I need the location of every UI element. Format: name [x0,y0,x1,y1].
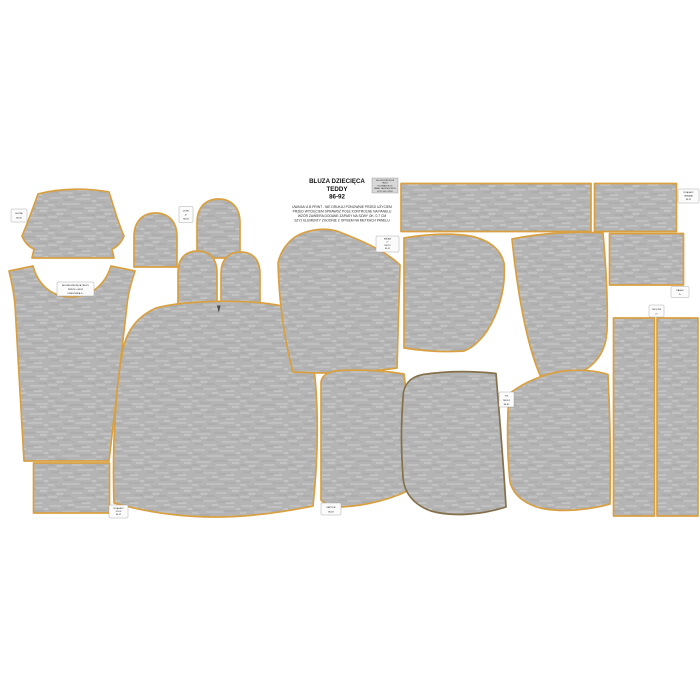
pattern-piece-skirt-2 [402,372,507,515]
tag-text-line: 86-92 [686,199,692,201]
tag-text-line: RĘKAWA [684,194,693,197]
pattern-piece-front-yoke [22,189,124,258]
piece-label-tag: BLUZA 86-92 [11,209,27,222]
pattern-piece-ear-3 [178,251,217,304]
sheet-title-line-2: TEDDY [327,186,349,193]
piece-label-tag: ŚCIĄGACZ DOŁU 86-92 [109,505,128,518]
tag-text-line: ŚCIĄGACZ [683,191,694,194]
pattern-piece-top-band-1 [401,184,591,232]
tag-background [11,209,27,222]
sheet-note-line-3: WZÓR ZAWIERA DODANE ZAPASY NA SZWY OK. 0… [298,213,386,218]
tag-text-line: KAPTUR [327,506,336,509]
piece-label-tag: KAPTUR 86-92 [321,503,341,515]
pattern-piece-ear-4 [221,252,260,304]
piece-label-tag: ŚCIĄGACZ RĘKAWA 86-92 [678,189,699,203]
piece-label-tag: BLUZA DZIECIĘCA TEDDY PRZÓD • 86-92 DRES… [57,282,94,296]
tag-text-line: 86-92 [504,404,510,406]
pattern-piece-ear-2 [197,199,240,258]
piece-label-tag: TYŁ TEDDY 86-92 [499,392,514,407]
pattern-piece-skirt-1 [321,370,413,507]
tag-text-line: 86-92 [183,219,189,221]
sheet-note-line-1: UWAGA! A B PRINT - NIE DRUKUJ PONOWNIE P… [292,204,392,209]
pattern-piece-side-panel [512,232,607,387]
pattern-piece-back-yoke [404,234,504,351]
tag-text-line: ŚCIĄGACZ [113,507,124,510]
tag-text-line: SZYJ WG OPISU [377,191,393,193]
tag-text-line: RĘKAW [384,238,391,241]
pattern-piece-top-band-2 [595,184,677,232]
sheet-title-line-3: 86-92 [329,194,345,201]
tag-text-line: TEDDY [503,400,511,402]
pattern-piece-strap-1 [614,318,655,516]
pattern-piece-ear-1 [134,213,177,267]
piece-label-tag: RĘKAW 2× TEDDY 86-92 [376,236,399,252]
sheet-note-line-2: PRZED WYCIĘCIEM SPRAWDŹ POLE KONTROLNE N… [293,209,392,214]
tag-text-line: UCHO [183,211,190,213]
tag-text-line: PRZÓD • 86-92 [68,288,84,291]
tag-text-line: 86-92 [116,514,122,516]
sheet-title-line-1: BLUZA DZIECIĘCA [309,178,365,185]
tag-text-line: DRESÓWKA 1× [68,292,84,295]
tag-text-line: TEDDY [382,183,389,185]
tag-text-line: BLUZA [15,212,23,215]
pattern-piece-skirt-3 [508,370,611,510]
tag-text-line: 86-92 [328,511,334,513]
pattern-piece-waistband [34,463,110,513]
tag-text-line: TROCZKI [652,309,662,311]
tag-text-line: 86-92 [16,218,22,220]
piece-label-tag: PASEK 2× [671,287,689,298]
pattern-sheet-canvas: BLUZA DZIECIĘCA TEDDY 86-92 UWAGA! A B P… [0,0,700,700]
tag-text-line: BLUZA DZIECIĘCA TEDDY [62,284,90,287]
tag-text-line: TEDDY [384,245,391,247]
piece-label-tag: UCHO 4× 86-92 [179,207,193,223]
tag-text-line: ROZMIAR 86-92 [378,184,394,187]
tag-text-line: PASEK [676,289,684,292]
pattern-piece-mid-band [610,234,684,286]
sheet-info-tag: BLUZA DZIECIĘCA TEDDY ROZMIAR 86-92 PANE… [372,178,398,193]
piece-label-tag: TROCZKI 2× [649,305,664,317]
sheet-note-line-4: SZYJ ELEMENTY ZGODNIE Z OPISEM NA METKAC… [294,219,390,223]
tag-text-line: BLUZA DZIECIĘCA [376,179,394,182]
pattern-piece-strap-2 [657,318,698,516]
tag-text-line: DOŁU [116,511,122,513]
tag-text-line: PANEL NA DRESÓWCE [374,187,397,190]
tag-text-line: 86-92 [385,248,391,250]
